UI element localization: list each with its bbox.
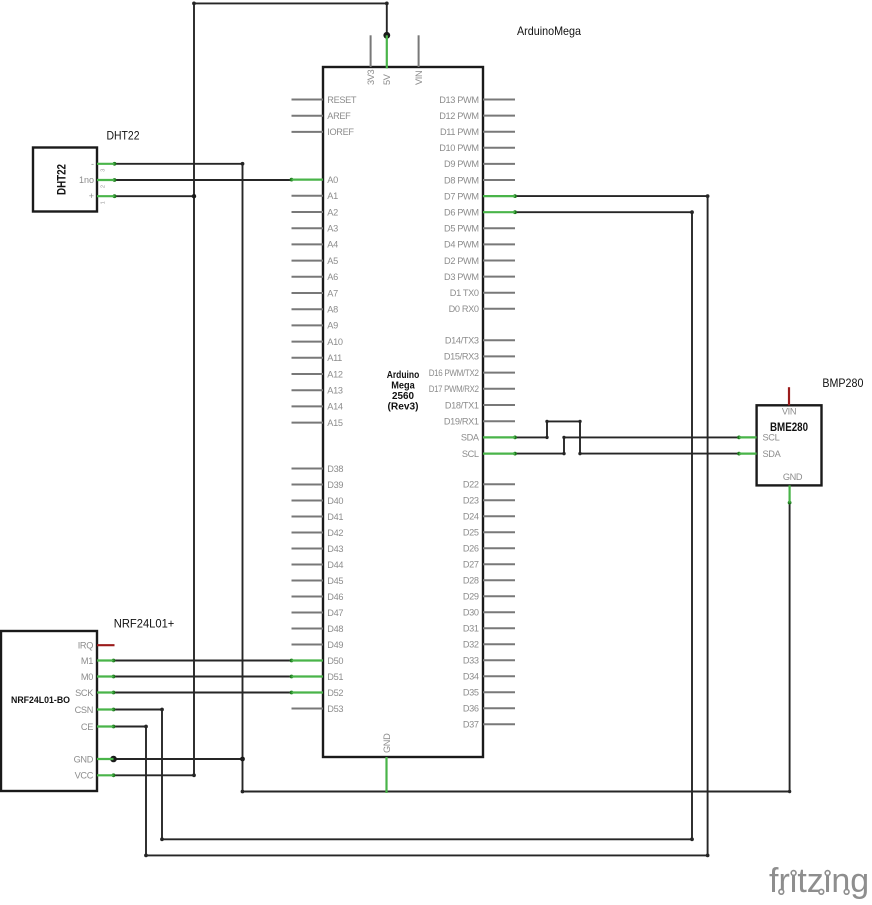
- svg-text:DHT22: DHT22: [107, 128, 140, 142]
- svg-text:D13 PWM: D13 PWM: [439, 95, 478, 105]
- svg-text:5V: 5V: [382, 73, 392, 85]
- svg-text:D17 PWM/RX2: D17 PWM/RX2: [429, 384, 479, 394]
- svg-text:D34: D34: [463, 672, 479, 682]
- svg-text:A8: A8: [327, 305, 338, 315]
- svg-text:D32: D32: [463, 640, 479, 650]
- svg-text:+: +: [89, 191, 94, 201]
- svg-text:D22: D22: [463, 480, 479, 490]
- svg-text:D41: D41: [327, 512, 343, 522]
- svg-text:GND: GND: [382, 733, 392, 753]
- svg-text:NRF24L01+: NRF24L01+: [114, 616, 175, 630]
- svg-text:M1: M1: [81, 656, 93, 666]
- svg-text:1no: 1no: [79, 175, 94, 185]
- svg-text:D52: D52: [327, 688, 343, 698]
- svg-text:D7 PWM: D7 PWM: [444, 191, 479, 201]
- svg-text:VIN: VIN: [782, 407, 796, 417]
- svg-text:D27: D27: [463, 560, 479, 570]
- svg-text:SDA: SDA: [763, 449, 782, 459]
- svg-text:D25: D25: [463, 528, 479, 538]
- svg-text:D44: D44: [327, 560, 343, 570]
- svg-text:D48: D48: [327, 624, 343, 634]
- svg-text:SCL: SCL: [763, 433, 780, 443]
- svg-text:D23: D23: [463, 496, 479, 506]
- svg-text:fritzing: fritzing: [769, 862, 869, 900]
- svg-text:D46: D46: [327, 592, 343, 602]
- svg-text:A10: A10: [327, 337, 343, 347]
- svg-text:D43: D43: [327, 544, 343, 554]
- svg-text:M0: M0: [81, 672, 93, 682]
- svg-text:2: 2: [101, 185, 107, 188]
- svg-text:D39: D39: [327, 480, 343, 490]
- svg-text:1: 1: [101, 201, 107, 204]
- svg-text:IOREF: IOREF: [327, 127, 354, 137]
- svg-text:A5: A5: [327, 256, 338, 266]
- svg-text:AREF: AREF: [327, 111, 351, 121]
- svg-text:D0 RX0: D0 RX0: [449, 304, 479, 314]
- svg-text:D28: D28: [463, 576, 479, 586]
- svg-text:D16 PWM/TX2: D16 PWM/TX2: [429, 368, 479, 378]
- svg-text:D11 PWM: D11 PWM: [440, 127, 479, 137]
- svg-text:VIN: VIN: [414, 71, 424, 85]
- svg-text:A11: A11: [327, 353, 342, 363]
- svg-text:D33: D33: [463, 656, 479, 666]
- svg-text:D24: D24: [463, 512, 479, 522]
- svg-text:D9 PWM: D9 PWM: [444, 159, 479, 169]
- svg-text:D18/TX1: D18/TX1: [445, 400, 479, 410]
- svg-text:A15: A15: [327, 418, 343, 428]
- svg-text:ArduinoMega: ArduinoMega: [517, 24, 581, 38]
- svg-text:SCK: SCK: [75, 688, 94, 698]
- svg-text:D31: D31: [463, 624, 479, 634]
- svg-text:D49: D49: [327, 640, 343, 650]
- svg-text:CSN: CSN: [75, 705, 93, 715]
- svg-text:A14: A14: [327, 402, 343, 412]
- svg-text:A12: A12: [327, 369, 343, 379]
- svg-text:GND: GND: [783, 472, 803, 482]
- svg-text:(Rev3): (Rev3): [388, 401, 419, 412]
- svg-text:-: -: [91, 159, 94, 169]
- svg-text:RESET: RESET: [327, 95, 357, 105]
- svg-text:Arduino: Arduino: [387, 370, 420, 381]
- svg-text:GND: GND: [74, 754, 94, 764]
- svg-text:SCL: SCL: [462, 449, 479, 459]
- svg-text:D5 PWM: D5 PWM: [444, 224, 479, 234]
- svg-text:A4: A4: [327, 240, 338, 250]
- svg-text:D10 PWM: D10 PWM: [439, 143, 478, 153]
- svg-text:D36: D36: [463, 704, 479, 714]
- svg-text:D50: D50: [327, 656, 343, 666]
- svg-text:A9: A9: [327, 321, 338, 331]
- svg-text:D3 PWM: D3 PWM: [444, 272, 479, 282]
- svg-text:A2: A2: [327, 207, 338, 217]
- svg-text:D42: D42: [327, 528, 343, 538]
- svg-text:SDA: SDA: [461, 433, 480, 443]
- svg-text:D29: D29: [463, 592, 479, 602]
- svg-text:D45: D45: [327, 576, 343, 586]
- svg-text:3V3: 3V3: [366, 69, 376, 85]
- svg-text:D47: D47: [327, 608, 343, 618]
- svg-text:2560: 2560: [392, 391, 415, 402]
- svg-text:Mega: Mega: [391, 380, 415, 391]
- svg-text:D26: D26: [463, 544, 479, 554]
- svg-text:NRF24L01-BO: NRF24L01-BO: [11, 695, 70, 705]
- svg-text:D15/RX3: D15/RX3: [444, 352, 479, 362]
- svg-text:D8 PWM: D8 PWM: [444, 175, 479, 185]
- svg-text:D12 PWM: D12 PWM: [439, 111, 478, 121]
- svg-text:BMP280: BMP280: [822, 376, 863, 390]
- svg-text:A13: A13: [327, 386, 343, 396]
- svg-text:D37: D37: [463, 720, 479, 730]
- svg-text:A3: A3: [327, 224, 338, 234]
- svg-text:CE: CE: [81, 722, 93, 732]
- svg-text:A1: A1: [327, 191, 338, 201]
- svg-text:A6: A6: [327, 272, 338, 282]
- svg-text:3: 3: [101, 169, 107, 172]
- svg-text:D2 PWM: D2 PWM: [444, 256, 479, 266]
- svg-text:D51: D51: [327, 672, 343, 682]
- svg-text:D19/RX1: D19/RX1: [444, 417, 479, 427]
- svg-text:D35: D35: [463, 688, 479, 698]
- svg-text:A0: A0: [327, 175, 338, 185]
- svg-text:D30: D30: [463, 608, 479, 618]
- svg-text:D38: D38: [327, 464, 343, 474]
- svg-text:D1 TX0: D1 TX0: [450, 288, 479, 298]
- svg-text:A7: A7: [327, 288, 338, 298]
- svg-text:D40: D40: [327, 496, 343, 506]
- svg-text:D6 PWM: D6 PWM: [444, 208, 479, 218]
- svg-text:D53: D53: [327, 704, 343, 714]
- svg-text:IRQ: IRQ: [78, 641, 93, 651]
- svg-text:VCC: VCC: [75, 771, 94, 781]
- svg-text:D14/TX3: D14/TX3: [445, 336, 479, 346]
- svg-text:D4 PWM: D4 PWM: [444, 240, 479, 250]
- svg-text:DHT22: DHT22: [57, 164, 69, 195]
